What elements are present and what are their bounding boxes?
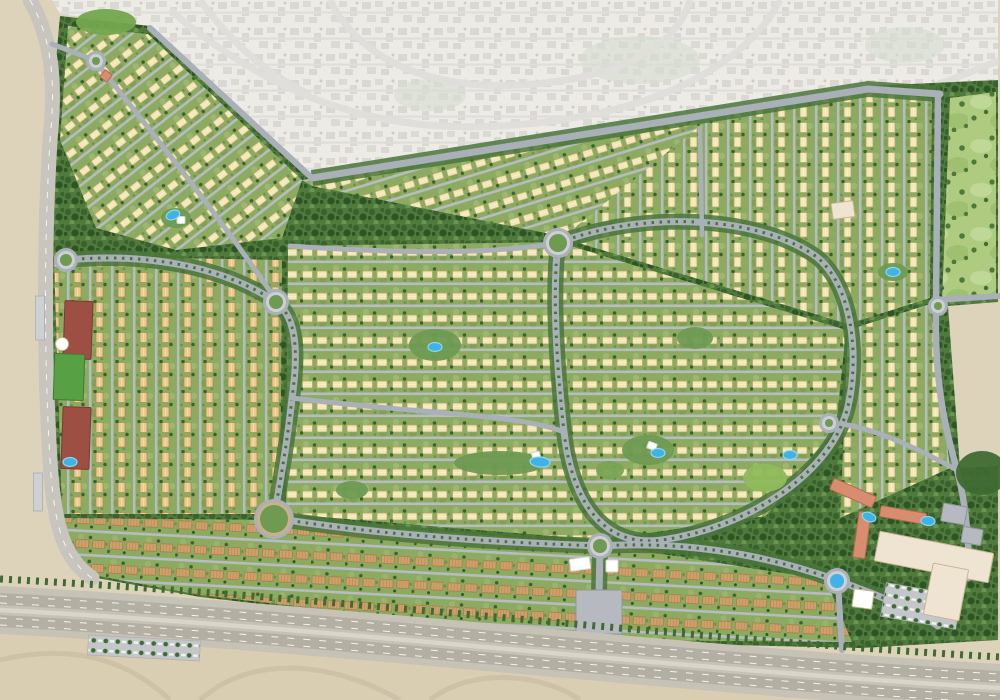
roundabout — [824, 568, 850, 594]
pocket-park — [76, 9, 136, 35]
fountain — [830, 574, 844, 588]
district-golf-course — [942, 92, 996, 302]
roundabout-green — [60, 254, 72, 266]
roundabout-green — [825, 419, 833, 427]
pocket-park — [336, 481, 368, 499]
swimming-pool — [886, 268, 900, 277]
roundabout-green — [549, 234, 567, 252]
master-plan-viewport — [0, 0, 1000, 700]
school-building — [576, 590, 622, 634]
roundabout — [543, 228, 573, 258]
sports-field — [53, 353, 85, 400]
community-building — [831, 201, 855, 220]
swimming-pool — [651, 449, 665, 458]
canopy-structure — [606, 560, 618, 572]
roundabout — [587, 533, 613, 559]
roundabout — [819, 413, 839, 433]
office-building — [961, 526, 983, 545]
pocket-park — [743, 464, 787, 492]
street-parking — [34, 473, 43, 511]
pocket-park — [622, 435, 674, 465]
roundabout-green — [593, 539, 607, 553]
mosque — [852, 589, 874, 610]
street-parking — [36, 296, 45, 340]
ne-collector-road — [700, 128, 702, 235]
school-building — [63, 301, 93, 360]
roundabout-green — [92, 57, 100, 65]
roundabout — [86, 51, 106, 71]
east-exit-road — [936, 296, 1000, 300]
canopy-structure — [569, 557, 590, 572]
roundabout — [254, 499, 294, 539]
community-dome — [56, 338, 69, 351]
swimming-pool — [63, 458, 77, 467]
office-building — [941, 503, 968, 525]
roundabout — [263, 289, 289, 315]
pocket-park — [677, 327, 713, 349]
roundabout-green — [260, 505, 288, 533]
swimming-pool — [783, 451, 797, 460]
roundabout — [928, 296, 948, 316]
roundabout-green — [934, 302, 942, 310]
master-plan-map — [0, 0, 1000, 700]
swimming-pool — [428, 343, 442, 352]
pocket-park — [596, 461, 624, 479]
roundabout-green — [269, 295, 283, 309]
roundabout — [54, 248, 78, 272]
